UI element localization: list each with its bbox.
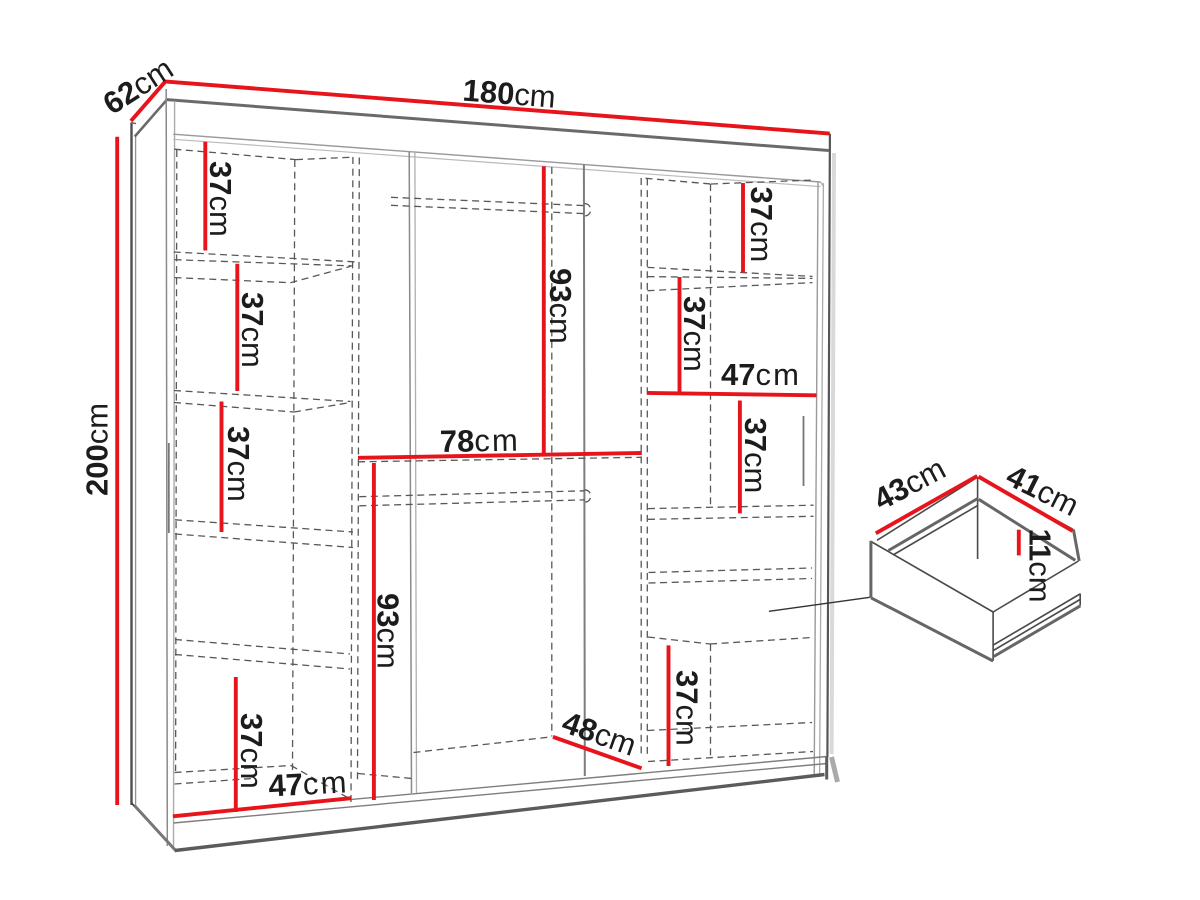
svg-text:200cm: 200cm <box>80 403 115 496</box>
svg-text:47cm: 47cm <box>268 764 350 803</box>
svg-text:37cm: 37cm <box>203 161 238 237</box>
svg-text:37cm: 37cm <box>677 296 712 372</box>
svg-text:37cm: 37cm <box>738 418 773 494</box>
svg-text:93cm: 93cm <box>543 268 578 344</box>
svg-text:11cm: 11cm <box>1023 529 1058 603</box>
svg-text:37cm: 37cm <box>744 187 779 263</box>
svg-text:37cm: 37cm <box>670 670 705 746</box>
svg-text:37cm: 37cm <box>221 426 256 502</box>
svg-text:93cm: 93cm <box>371 593 406 669</box>
svg-text:47cm: 47cm <box>721 357 801 392</box>
svg-text:78cm: 78cm <box>440 423 521 459</box>
svg-text:37cm: 37cm <box>235 292 270 368</box>
svg-text:37cm: 37cm <box>234 713 269 789</box>
svg-text:180cm: 180cm <box>461 73 557 115</box>
